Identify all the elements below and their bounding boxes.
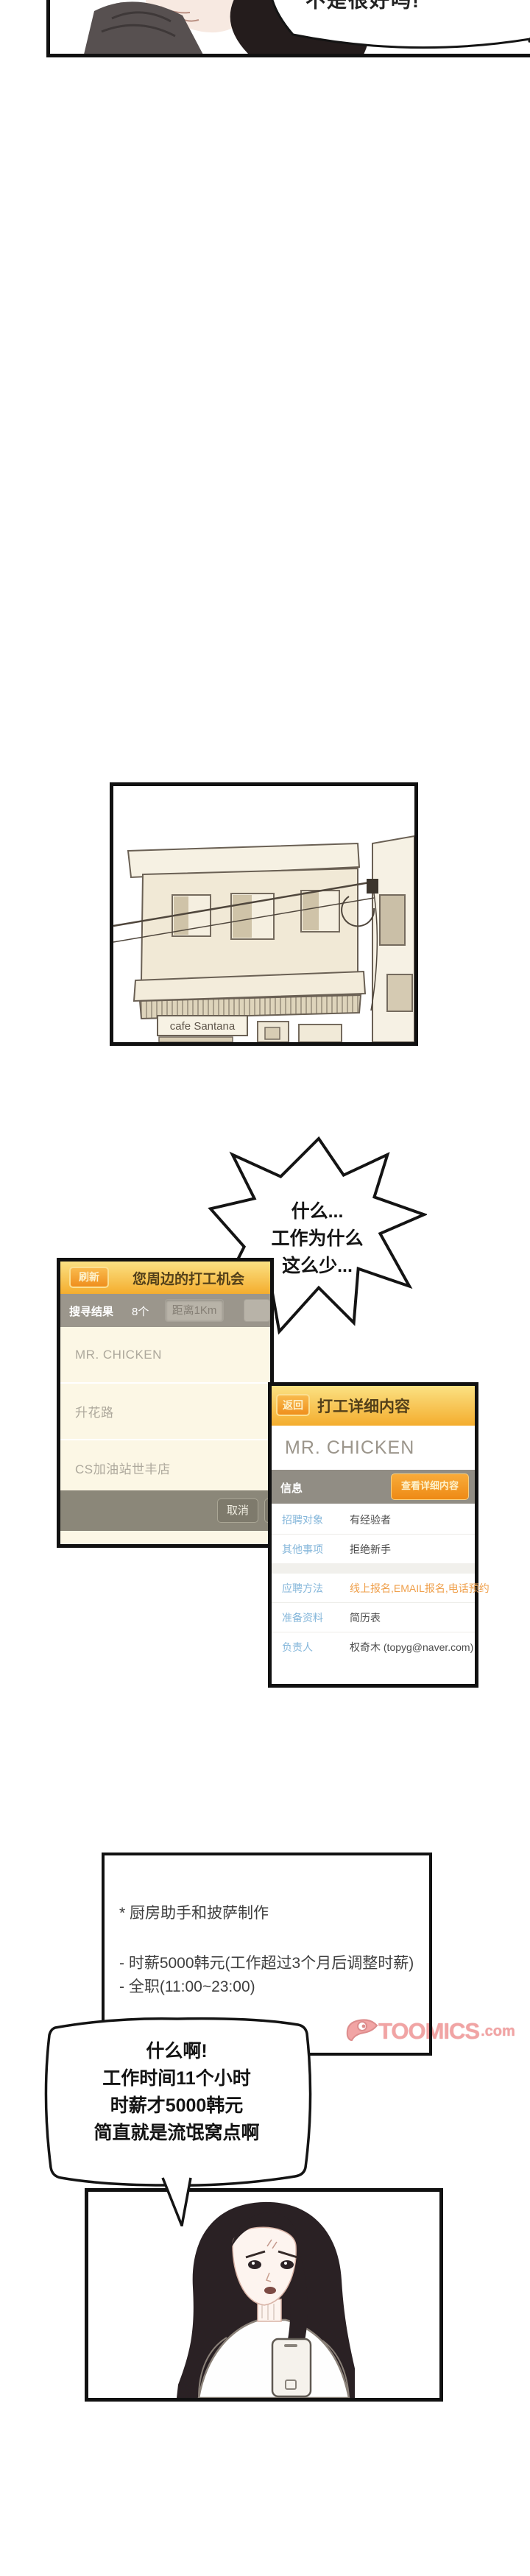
pole-hardware xyxy=(367,879,378,894)
job-list-action-bar: 取消 xyxy=(60,1490,270,1531)
job-detail-header: 返回 打工详细内容 xyxy=(272,1386,475,1426)
back-button[interactable]: 返回 xyxy=(276,1394,310,1416)
comic-page: 不是很好吗! cafe Santana xyxy=(0,0,530,2576)
store-name-row: MR. CHICKEN xyxy=(272,1426,475,1470)
job-detail-title: 打工详细内容 xyxy=(317,1395,410,1417)
job-detail-app-panel: 返回 打工详细内容 MR. CHICKEN 信息 查看详细内容 招聘对象 有经验… xyxy=(268,1382,478,1688)
top-speech-text: 不是很好吗! xyxy=(305,0,420,13)
bubble-tail xyxy=(163,2178,191,2226)
job-list-header: 刷新 您周边的打工机会 xyxy=(60,1262,270,1294)
results-count: 8个 xyxy=(132,1303,149,1319)
job-list-item[interactable]: 升花路 xyxy=(60,1384,270,1440)
note-line: * 厨房助手和披萨制作 xyxy=(119,1901,269,1923)
detail-row-value: 线上报名,EMAIL报名,电话预约 xyxy=(350,1581,490,1596)
detail-row-label: 其他事项 xyxy=(272,1542,350,1557)
detail-row-value: 拒绝新手 xyxy=(350,1542,391,1557)
info-section-label: 信息 xyxy=(280,1480,303,1496)
cancel-button[interactable]: 取消 xyxy=(217,1498,258,1523)
results-label: 搜寻结果 xyxy=(69,1303,113,1319)
detail-row-value: 有经验者 xyxy=(350,1512,391,1527)
store-name: MR. CHICKEN xyxy=(272,1437,414,1459)
job-list-title: 您周边的打工机会 xyxy=(132,1268,244,1288)
job-list-item[interactable]: CS加油站世丰店 xyxy=(60,1440,270,1497)
toomics-watermark: TOOMICS .com xyxy=(344,2017,515,2046)
phone xyxy=(272,2339,311,2396)
toomics-logo-icon xyxy=(344,2017,378,2046)
watermark-brand: TOOMICS xyxy=(378,2018,479,2045)
job-detail-row: 应聘方法 线上报名,EMAIL报名,电话预约 xyxy=(272,1563,475,1602)
top-panel-art xyxy=(50,0,530,57)
building-art: cafe Santana xyxy=(113,786,414,1042)
mouth xyxy=(264,2287,276,2294)
job-detail-row: 招聘对象 有经验者 xyxy=(272,1505,475,1534)
reaction-bubble: 什么啊! 工作时间11个小时 时薪才5000韩元 简直就是流氓窝点啊 xyxy=(33,2011,320,2226)
detail-row-label: 应聘方法 xyxy=(272,1581,350,1596)
job-list-item[interactable]: MR. CHICKEN xyxy=(60,1327,270,1384)
detail-row-value: 简历表 xyxy=(350,1610,381,1625)
job-list-subbar: 搜寻结果 8个 距离1Km xyxy=(60,1294,270,1327)
watermark-domain: .com xyxy=(481,2023,515,2040)
cafe-sign-text: cafe Santana xyxy=(170,1020,236,1033)
detail-row-label: 准备资料 xyxy=(272,1610,350,1625)
info-bar: 信息 查看详细内容 xyxy=(272,1470,475,1504)
job-detail-row: 其他事项 拒绝新手 xyxy=(272,1534,475,1563)
detail-row-label: 招聘对象 xyxy=(272,1512,350,1527)
detail-row-label: 负责人 xyxy=(272,1640,350,1655)
job-detail-row: 准备资料 简历表 xyxy=(272,1602,475,1632)
distance-filter-button[interactable]: 距离1Km xyxy=(165,1299,224,1322)
job-detail-rows: 招聘对象 有经验者 其他事项 拒绝新手 应聘方法 线上报名,EMAIL报名,电话… xyxy=(272,1504,475,1661)
job-detail-row: 负责人 权奇木 (topyg@naver.com) xyxy=(272,1632,475,1661)
left-eye xyxy=(248,2260,261,2269)
refresh-button[interactable]: 刷新 xyxy=(69,1267,109,1288)
job-list: MR. CHICKEN 升花路 CS加油站世丰店 xyxy=(60,1327,270,1497)
note-line: - 全职(11:00~23:00) xyxy=(119,1975,255,1997)
view-detail-button[interactable]: 查看详细内容 xyxy=(391,1473,469,1500)
reaction-bubble-text: 什么啊! 工作时间11个小时 时薪才5000韩元 简直就是流氓窝点啊 xyxy=(33,2038,320,2147)
job-list-app-panel: 刷新 您周边的打工机会 搜寻结果 8个 距离1Km MR. CHICKEN 升花… xyxy=(57,1258,274,1548)
note-line: - 时薪5000韩元(工作超过3个月后调整时薪) xyxy=(119,1951,414,1973)
detail-row-value: 权奇木 (topyg@naver.com) xyxy=(350,1640,473,1655)
building-panel: cafe Santana xyxy=(110,782,418,1046)
filter-button-partial[interactable] xyxy=(244,1299,270,1322)
top-panel: 不是很好吗! xyxy=(46,0,530,57)
right-eye xyxy=(280,2260,294,2269)
